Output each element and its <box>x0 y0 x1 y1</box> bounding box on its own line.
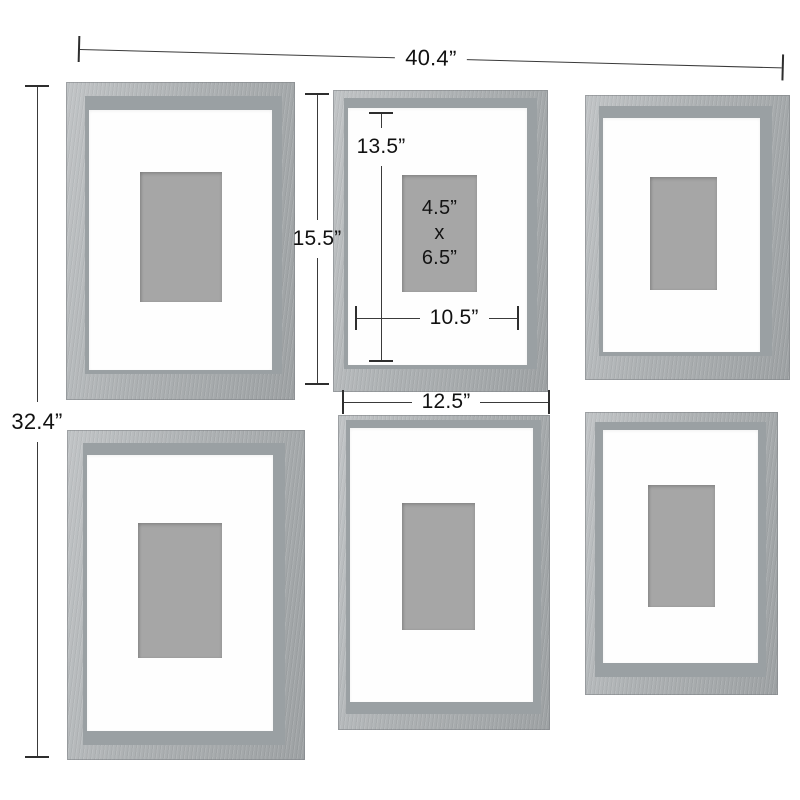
photo-width-label: 4.5” <box>422 196 457 221</box>
dimension-overall-height: 32.4” <box>24 85 50 758</box>
frame-bottom-left <box>67 430 305 760</box>
dimension-line <box>357 318 420 319</box>
dimension-overall-width: 40.4” <box>78 36 784 80</box>
photo-size-separator: x <box>422 221 457 246</box>
dimension-line <box>381 166 382 360</box>
dimension-line <box>489 318 517 319</box>
dimension-mat-opening-width: 10.5” <box>355 306 519 330</box>
dimension-line <box>466 59 781 68</box>
photo-placeholder <box>650 177 717 290</box>
frame-bottom-right <box>585 412 778 695</box>
dimension-line <box>37 442 38 757</box>
dimension-line <box>317 258 318 383</box>
dimension-line <box>37 87 38 402</box>
dimension-tick <box>369 360 393 362</box>
mat-opening-height-label: 13.5” <box>357 128 406 166</box>
frame-width-label: 12.5” <box>412 390 481 414</box>
dimension-tick <box>305 383 329 385</box>
photo-height-label: 6.5” <box>422 246 457 271</box>
photo-size-label: 4.5” x 6.5” <box>422 196 457 271</box>
dimension-line <box>344 402 412 403</box>
overall-height-label: 32.4” <box>11 402 62 442</box>
dimension-tick <box>25 756 49 758</box>
frame-bottom-middle <box>338 415 550 730</box>
dimension-line <box>381 114 382 128</box>
dimension-tick <box>517 306 519 330</box>
frame-height-label: 15.5” <box>293 220 342 258</box>
dimension-frame-width: 12.5” <box>342 390 550 414</box>
dimension-frame-height: 15.5” <box>304 93 330 385</box>
dimension-tick <box>781 54 784 80</box>
dimension-line <box>317 95 318 220</box>
photo-placeholder <box>140 172 222 302</box>
dimension-line <box>80 49 395 58</box>
overall-width-label: 40.4” <box>395 44 467 72</box>
dimension-diagram: 4.5” x 6.5” 40.4” 32.4” <box>0 0 800 800</box>
frame-top-left <box>66 82 295 400</box>
frame-top-right <box>585 95 790 380</box>
dimension-tick <box>548 390 550 414</box>
dimension-line <box>480 402 548 403</box>
photo-placeholder <box>648 485 715 607</box>
mat-opening-width-label: 10.5” <box>420 306 489 330</box>
photo-placeholder <box>402 503 475 630</box>
photo-placeholder <box>138 523 222 658</box>
photo-placeholder: 4.5” x 6.5” <box>402 175 477 292</box>
